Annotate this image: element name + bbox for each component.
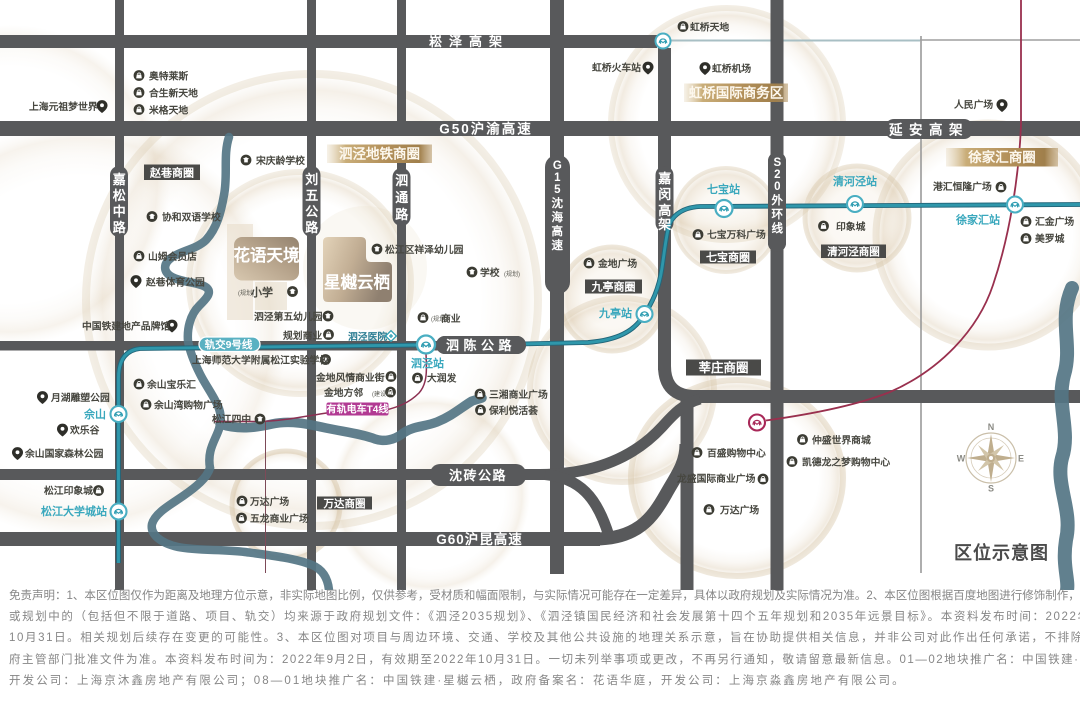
- svg-text:保利悦活荟: 保利悦活荟: [488, 404, 538, 417]
- svg-text:沈: 沈: [552, 196, 564, 210]
- svg-text:虹桥天地: 虹桥天地: [690, 21, 729, 34]
- svg-text:G60沪昆高速: G60沪昆高速: [436, 531, 523, 547]
- svg-text:轨交9号线: 轨交9号线: [205, 338, 253, 351]
- svg-text:(规划): (规划): [238, 289, 254, 297]
- svg-text:松江印象城: 松江印象城: [44, 484, 93, 497]
- svg-text:规划商业: 规划商业: [283, 329, 322, 342]
- svg-text:余山宝乐汇: 余山宝乐汇: [146, 378, 196, 391]
- svg-text:泗泾第五幼儿园: 泗泾第五幼儿园: [254, 310, 323, 323]
- svg-text:金地风情商业街: 金地风情商业街: [315, 371, 385, 384]
- svg-text:星樾云栖: 星樾云栖: [324, 272, 390, 292]
- svg-text:(建设中): (建设中): [372, 390, 394, 398]
- svg-text:路: 路: [395, 207, 409, 222]
- svg-text:徐家汇商圈: 徐家汇商圈: [967, 149, 1036, 165]
- svg-text:上海元祖梦世界: 上海元祖梦世界: [29, 100, 98, 113]
- svg-text:泗泾地铁商圈: 泗泾地铁商圈: [339, 146, 420, 162]
- svg-text:大润发: 大润发: [427, 372, 457, 385]
- svg-text:松江四中: 松江四中: [212, 413, 251, 426]
- svg-text:金地广场: 金地广场: [597, 257, 637, 270]
- svg-text:清河泾商圈: 清河泾商圈: [827, 245, 880, 258]
- svg-text:万达广场: 万达广场: [249, 495, 289, 508]
- svg-text:沈砖公路: 沈砖公路: [449, 468, 507, 483]
- svg-text:虹桥火车站: 虹桥火车站: [592, 61, 641, 74]
- svg-text:1: 1: [554, 172, 561, 184]
- svg-text:架: 架: [657, 217, 671, 232]
- svg-text:泗: 泗: [395, 173, 408, 188]
- svg-text:泗泾医院: 泗泾医院: [348, 330, 387, 343]
- svg-text:嘉: 嘉: [112, 172, 126, 187]
- svg-text:2: 2: [774, 169, 780, 181]
- svg-text:印象城: 印象城: [836, 220, 866, 233]
- svg-text:闵: 闵: [658, 187, 671, 202]
- svg-text:路: 路: [305, 220, 319, 235]
- svg-text:有轨电车T4线: 有轨电车T4线: [327, 403, 389, 416]
- svg-text:虹桥机场: 虹桥机场: [712, 62, 751, 75]
- svg-text:七宝万科广场: 七宝万科广场: [707, 228, 766, 241]
- svg-text:刘: 刘: [305, 172, 318, 187]
- svg-text:宋庆龄学校: 宋庆龄学校: [255, 154, 305, 167]
- svg-text:线: 线: [772, 221, 784, 235]
- svg-text:百盛购物中心: 百盛购物中心: [707, 447, 766, 460]
- svg-text:清河泾站: 清河泾站: [833, 174, 877, 188]
- svg-text:三湘商业广场: 三湘商业广场: [489, 388, 548, 401]
- svg-text:协和双语学校: 协和双语学校: [162, 211, 221, 224]
- svg-text:海: 海: [552, 210, 564, 224]
- svg-text:万达广场: 万达广场: [719, 504, 759, 517]
- svg-text:欢乐谷: 欢乐谷: [69, 424, 100, 437]
- svg-text:通: 通: [395, 190, 408, 205]
- svg-text:泗泾站: 泗泾站: [411, 356, 444, 370]
- svg-text:凯德龙之梦购物中心: 凯德龙之梦购物中心: [802, 456, 890, 469]
- svg-text:美罗城: 美罗城: [1035, 232, 1065, 245]
- svg-text:G50沪渝高速: G50沪渝高速: [439, 121, 533, 137]
- svg-text:月湖雕塑公园: 月湖雕塑公园: [50, 391, 110, 404]
- svg-text:崧泽高架: 崧泽高架: [429, 34, 509, 49]
- svg-text:龙盛国际商业广场: 龙盛国际商业广场: [676, 472, 756, 485]
- svg-text:学校: 学校: [480, 266, 500, 279]
- svg-text:高: 高: [552, 224, 564, 238]
- svg-text:泗陈公路: 泗陈公路: [446, 338, 516, 353]
- svg-text:嘉: 嘉: [657, 171, 671, 186]
- svg-text:金地方邻: 金地方邻: [323, 386, 363, 399]
- svg-text:赵巷体育公园: 赵巷体育公园: [145, 276, 205, 289]
- svg-text:赵巷商圈: 赵巷商圈: [149, 166, 194, 180]
- svg-text:虹桥国际商务区: 虹桥国际商务区: [689, 85, 784, 101]
- svg-text:仲盛世界商城: 仲盛世界商城: [812, 434, 871, 447]
- svg-text:五龙商业广场: 五龙商业广场: [250, 512, 309, 525]
- svg-text:佘山: 佘山: [83, 407, 106, 421]
- svg-text:环: 环: [772, 208, 784, 221]
- svg-text:高: 高: [658, 203, 671, 218]
- svg-text:区位示意图: 区位示意图: [954, 542, 1049, 563]
- svg-text:余山国家森林公园: 余山国家森林公园: [24, 447, 104, 460]
- svg-text:松江区祥泽幼儿园: 松江区祥泽幼儿园: [385, 243, 464, 256]
- svg-text:徐家汇站: 徐家汇站: [955, 213, 1000, 227]
- svg-text:S: S: [773, 157, 781, 169]
- svg-text:(规划): (规划): [504, 270, 520, 278]
- svg-text:莘庄商圈: 莘庄商圈: [698, 360, 748, 375]
- svg-text:山姆会员店: 山姆会员店: [148, 250, 197, 263]
- svg-text:五: 五: [305, 188, 318, 203]
- svg-text:E: E: [1018, 454, 1024, 464]
- svg-text:余山湾购物广场: 余山湾购物广场: [153, 399, 223, 412]
- svg-text:九亭商圈: 九亭商圈: [591, 280, 636, 294]
- svg-text:N: N: [988, 422, 995, 432]
- svg-text:七宝站: 七宝站: [707, 182, 740, 196]
- svg-text:商业: 商业: [441, 312, 461, 325]
- svg-text:松: 松: [113, 188, 126, 203]
- svg-text:七宝商圈: 七宝商圈: [706, 250, 750, 264]
- svg-text:奥特莱斯: 奥特莱斯: [149, 70, 188, 83]
- svg-text:延安高架: 延安高架: [888, 122, 969, 138]
- svg-text:W: W: [957, 454, 966, 464]
- svg-text:0: 0: [774, 181, 780, 193]
- svg-text:中: 中: [113, 204, 126, 219]
- svg-text:公: 公: [305, 204, 318, 219]
- svg-text:花语天境: 花语天境: [234, 245, 301, 265]
- svg-text:5: 5: [554, 184, 561, 196]
- svg-text:九亭站: 九亭站: [598, 306, 632, 320]
- svg-text:速: 速: [552, 238, 564, 252]
- svg-text:外: 外: [771, 193, 784, 207]
- svg-text:人民广场: 人民广场: [954, 98, 993, 111]
- svg-text:路: 路: [113, 220, 127, 235]
- svg-text:米格天地: 米格天地: [148, 104, 188, 117]
- svg-text:港汇恒隆广场: 港汇恒隆广场: [933, 180, 992, 193]
- svg-text:G: G: [553, 160, 562, 172]
- svg-text:中国铁建地产品牌馆: 中国铁建地产品牌馆: [82, 320, 170, 333]
- svg-text:松江大学城站: 松江大学城站: [41, 504, 107, 518]
- svg-text:汇金广场: 汇金广场: [1035, 215, 1074, 228]
- svg-text:万达商圈: 万达商圈: [323, 497, 366, 510]
- svg-text:上海师范大学附属松江实验学校: 上海师范大学附属松江实验学校: [192, 354, 329, 367]
- svg-text:S: S: [988, 484, 994, 494]
- svg-text:合生新天地: 合生新天地: [148, 87, 198, 100]
